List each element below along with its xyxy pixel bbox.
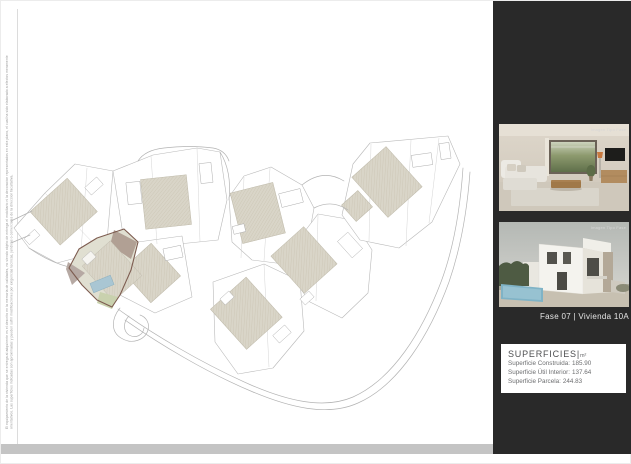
superficie-util-row: Superficie Útil Interior:137.64 [508,368,620,377]
unit-label: Fase 07 | Vivienda 10A [496,312,629,321]
photo-caption: Imagen Tipo Fase [591,225,626,230]
sidebar: Imagen Tipo Fase [493,1,631,454]
superficie-construida-row: Superficie Construida:185.90 [508,359,620,368]
brochure-page: El equipamiento de la vivienda que se en… [0,0,631,464]
site-plan [1,1,493,444]
exterior-render-image [499,222,629,307]
superficies-panel: SUPERFICIES|m² Superficie Construida:185… [501,344,626,393]
superficie-parcela-row: Superficie Parcela:244.83 [508,377,620,386]
exterior-render-photo: Imagen Tipo Fase [499,222,629,307]
footer-grey-bar [1,444,493,454]
photo-caption: Imagen Tipo Fase [591,127,626,132]
interior-render-photo: Imagen Tipo Fase [499,124,629,211]
interior-render-image [499,124,629,211]
superficies-title: SUPERFICIES|m² [508,349,620,359]
